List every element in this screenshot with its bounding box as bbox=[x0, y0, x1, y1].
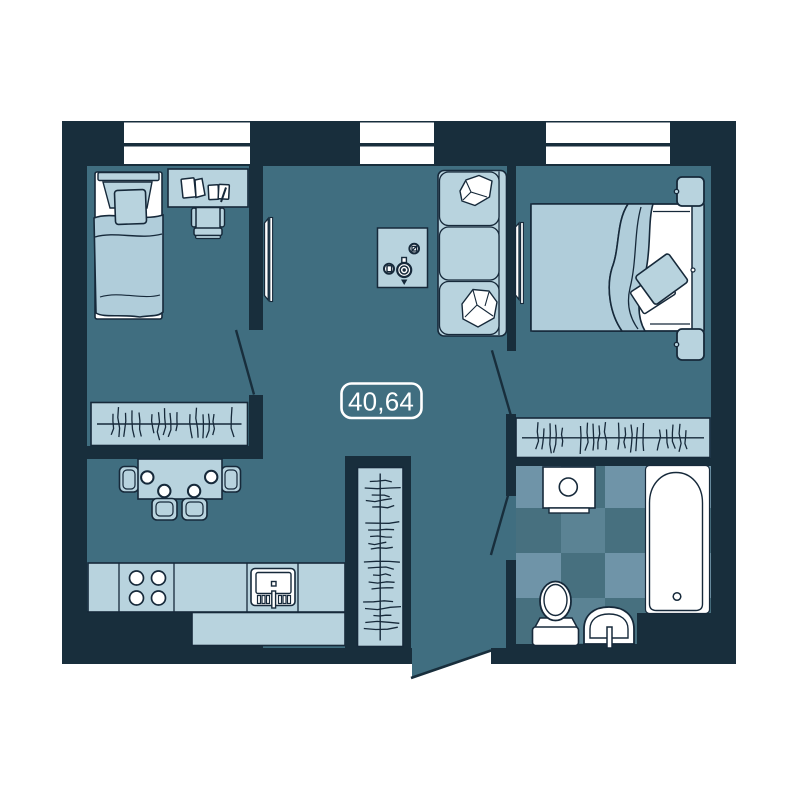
svg-text:40,64: 40,64 bbox=[348, 387, 414, 417]
